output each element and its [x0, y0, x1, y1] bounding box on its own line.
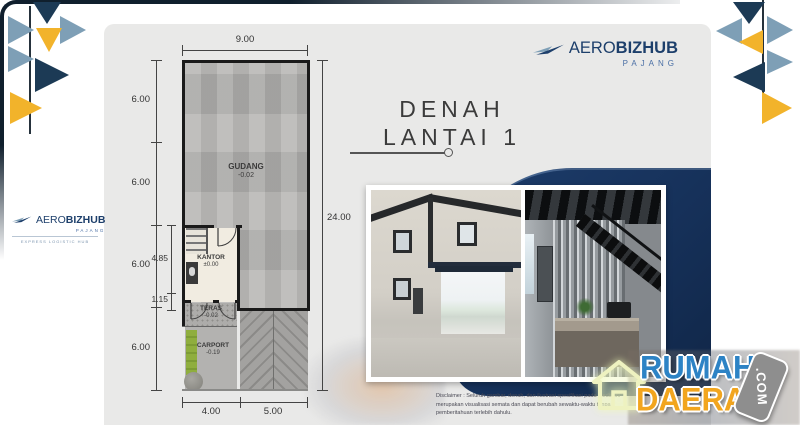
- dim-tick: [317, 390, 328, 391]
- window: [393, 278, 411, 300]
- room-elevation: -0.02: [210, 172, 282, 181]
- label-carport: CARPORT -0.19: [188, 342, 238, 358]
- title-underline-endpoint: [444, 148, 453, 157]
- dim-tick: [151, 60, 162, 61]
- triangle-icon: [767, 16, 793, 44]
- dim-left-2: 6.00: [124, 177, 150, 188]
- dim-left-1: 6.00: [124, 94, 150, 105]
- window: [457, 222, 477, 246]
- dim-tick: [151, 142, 162, 143]
- dim-tick: [151, 390, 162, 391]
- door-header-beam: [435, 266, 513, 272]
- dim-tick: [182, 397, 183, 408]
- dim-tick: [182, 45, 183, 56]
- room-name: KANTOR: [186, 254, 236, 262]
- dim-tick: [167, 225, 176, 226]
- dim-right-label: 24.00: [327, 212, 351, 223]
- header-brand-logo: AEROBIZHUB PAJANG: [528, 40, 678, 69]
- concrete-floor: [371, 338, 521, 377]
- label-teras: TERAS -0.02: [186, 305, 236, 321]
- dim-tick: [307, 45, 308, 56]
- room-elevation: -0.02: [186, 313, 236, 321]
- flyer-canvas: AEROBIZHUB PAJANG EXPRESS LOGISTIC HUB A…: [0, 0, 800, 425]
- dim-tick: [240, 397, 241, 408]
- dim-tick: [151, 307, 162, 308]
- dim-tick: [151, 225, 162, 226]
- roof-beam-right: [428, 194, 521, 218]
- room-elevation: -0.19: [188, 350, 238, 358]
- dim-tick: [167, 310, 176, 311]
- door-opening: [441, 272, 505, 334]
- room-elevation: ±0.00: [186, 262, 236, 270]
- brand-subname: PAJANG: [569, 58, 678, 69]
- dim-inner-line: [171, 225, 172, 310]
- photo-frame: [366, 185, 666, 382]
- dim-kantor-height: 4.85: [144, 253, 168, 263]
- room-name: GUDANG: [210, 162, 282, 172]
- dim-right-line: [322, 60, 323, 390]
- dim-left-4: 6.00: [124, 342, 150, 353]
- dim-tick: [307, 397, 308, 408]
- brand-name: AEROBIZHUB: [569, 39, 678, 57]
- window: [393, 230, 412, 253]
- office-door: [537, 246, 553, 302]
- photo-warehouse-interior: [371, 190, 521, 377]
- paper-plane-icon: [533, 44, 565, 63]
- dim-bottom-line: [182, 402, 308, 403]
- dim-teras-height: 1.15: [144, 294, 168, 304]
- printer: [607, 302, 631, 318]
- triangle-icon: [767, 50, 793, 74]
- triangle-icon: [733, 62, 765, 92]
- watermark-word-rumah: RUMAH: [640, 351, 755, 384]
- triangle-icon: [762, 92, 792, 124]
- roof-beam-left: [371, 193, 434, 222]
- steel-column: [428, 198, 433, 264]
- dim-tick: [317, 60, 328, 61]
- label-kantor: KANTOR ±0.00: [186, 254, 236, 270]
- dim-top-line: [182, 50, 308, 51]
- small-door: [413, 288, 423, 314]
- room-name: TERAS: [186, 305, 236, 313]
- window-strip: [525, 234, 534, 294]
- dim-tick: [167, 293, 176, 294]
- watermark-com-text: .COM: [753, 367, 770, 404]
- triangle-icon: [739, 30, 763, 54]
- plant: [575, 298, 595, 316]
- label-gudang: GUDANG -0.02: [210, 162, 282, 181]
- dim-bottom-1: 4.00: [191, 406, 231, 417]
- dim-top-label: 9.00: [182, 34, 308, 45]
- room-name: CARPORT: [188, 342, 238, 350]
- dim-bottom-2: 5.00: [253, 406, 293, 417]
